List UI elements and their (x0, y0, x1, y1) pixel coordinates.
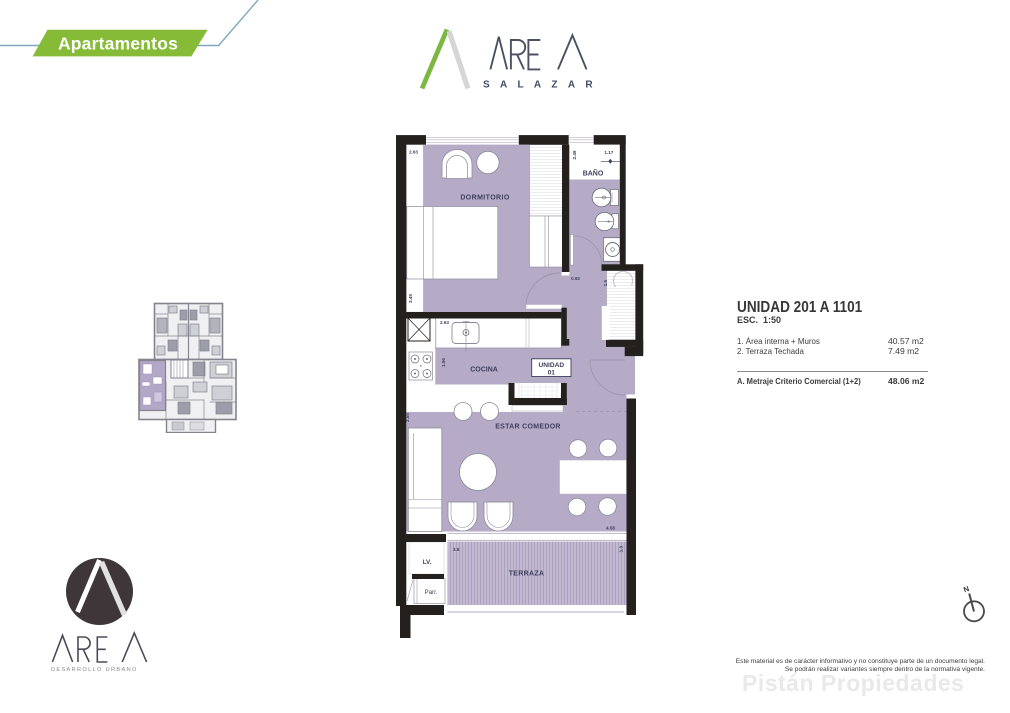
svg-text:1.17: 1.17 (604, 150, 613, 155)
svg-text:BAÑO: BAÑO (583, 169, 604, 178)
svg-text:0.92: 0.92 (571, 276, 580, 281)
svg-text:ESTAR COMEDOR: ESTAR COMEDOR (495, 424, 561, 431)
svg-text:Apartamentos: Apartamentos (58, 34, 178, 54)
svg-text:2.55: 2.55 (405, 413, 410, 422)
svg-text:1.3: 1.3 (619, 546, 624, 553)
svg-text:DORMITORIO: DORMITORIO (460, 195, 510, 202)
svg-text:01: 01 (548, 369, 556, 376)
svg-text:Parr.: Parr. (424, 589, 437, 596)
svg-text:4.58: 4.58 (606, 526, 615, 531)
svg-text:LV.: LV. (423, 559, 432, 566)
svg-text:UNIDAD: UNIDAD (538, 362, 564, 369)
svg-text:1.96: 1.96 (441, 358, 446, 367)
svg-text:1.5: 1.5 (603, 280, 608, 287)
svg-text:DESARROLLO URBANO: DESARROLLO URBANO (51, 667, 138, 673)
svg-text:N: N (962, 584, 970, 594)
svg-text:2.49: 2.49 (572, 150, 577, 159)
svg-text:2.63: 2.63 (440, 320, 449, 325)
svg-text:3.49: 3.49 (408, 294, 413, 303)
svg-text:TERRAZA: TERRAZA (509, 571, 545, 578)
svg-text:COCINA: COCINA (470, 367, 498, 374)
svg-text:3.8: 3.8 (453, 547, 460, 552)
svg-text:SALAZAR: SALAZAR (483, 80, 603, 91)
svg-text:2.63: 2.63 (409, 150, 418, 155)
